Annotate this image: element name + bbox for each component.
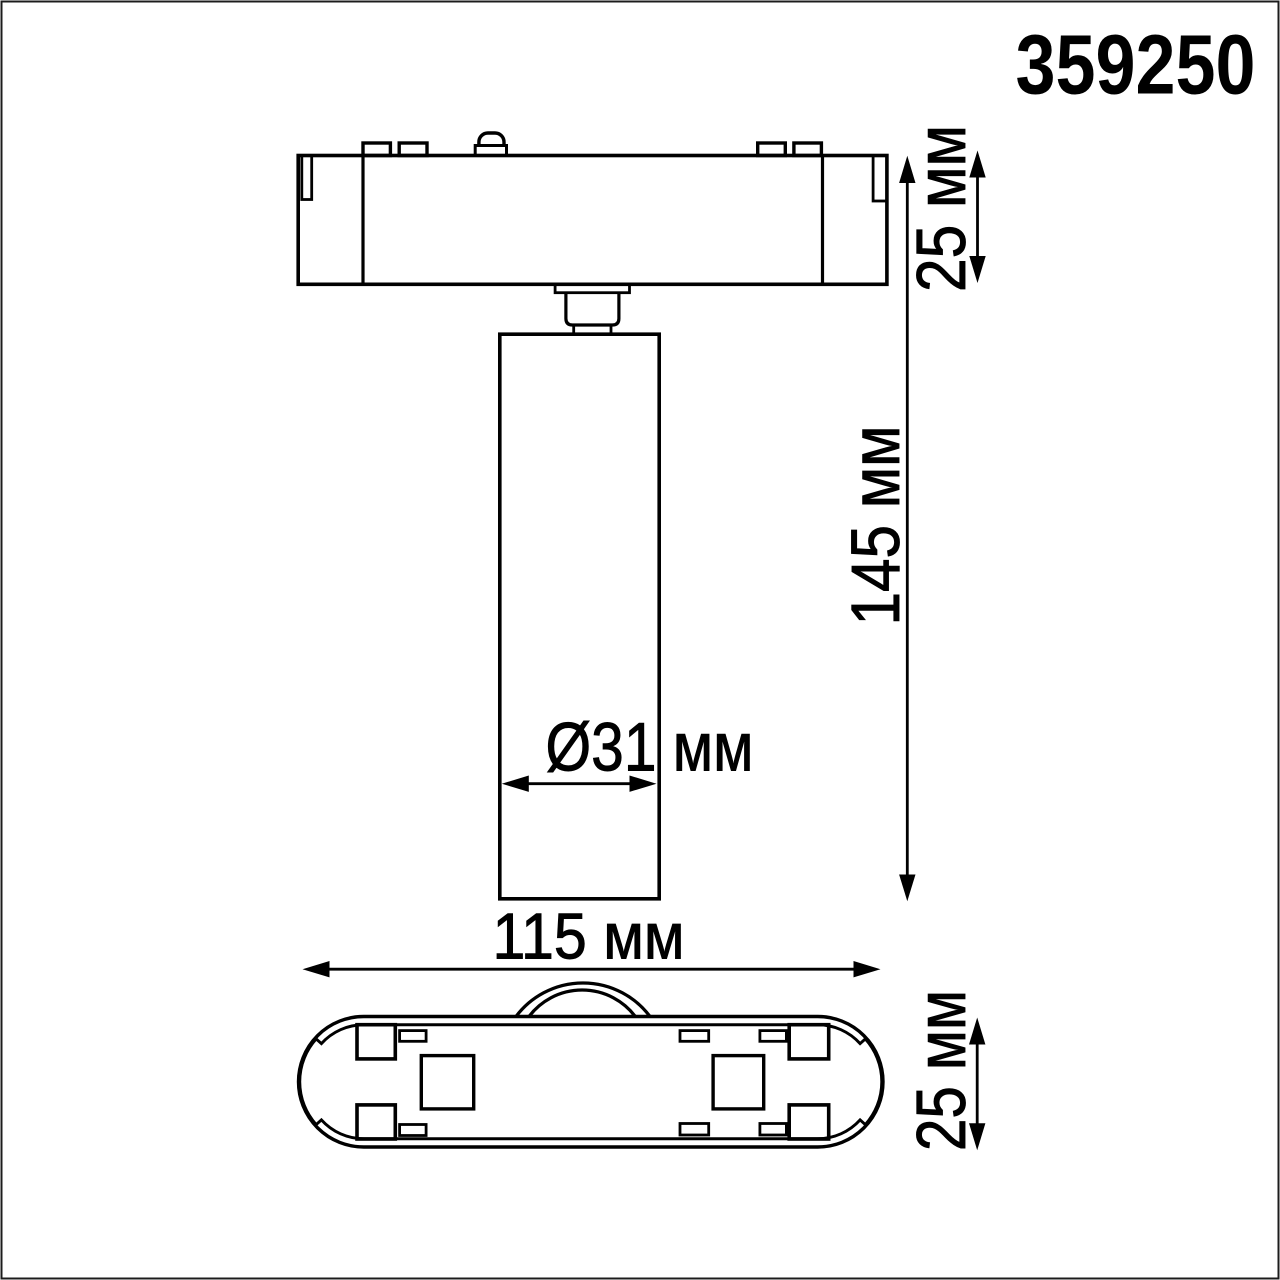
svg-text:25 мм: 25 мм	[902, 990, 980, 1151]
svg-text:25 мм: 25 мм	[902, 125, 980, 292]
svg-text:145 мм: 145 мм	[837, 426, 914, 626]
svg-text:115 мм: 115 мм	[493, 900, 685, 973]
svg-text:Ø31 мм: Ø31 мм	[546, 709, 754, 786]
svg-text:359250: 359250	[1016, 18, 1256, 112]
